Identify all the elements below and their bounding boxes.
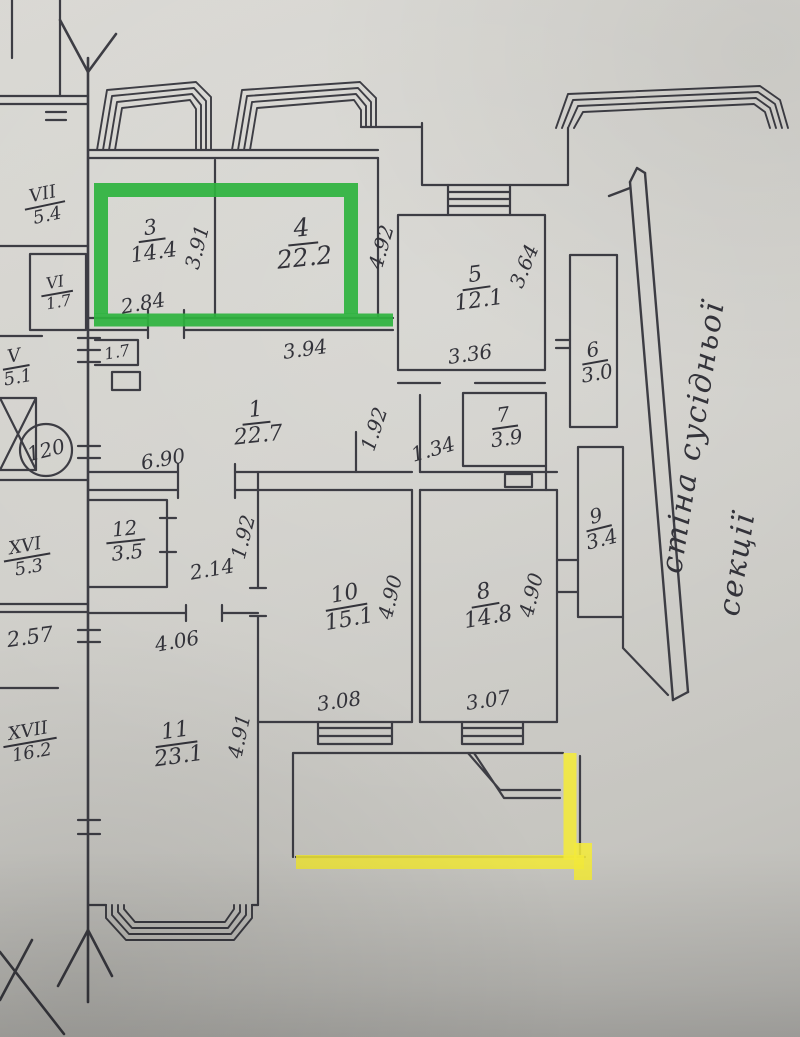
room-area: 3.0 <box>580 361 615 387</box>
unit-label-VI: VI1.7 <box>38 272 76 314</box>
yellow-highlight <box>296 753 584 880</box>
floor-plan: 314.4 422.2 512.1 63.0 73.9 122.7 123.5 … <box>0 0 800 1037</box>
room-label-10: 1015.1 <box>319 578 376 635</box>
left-section-walls <box>0 0 88 688</box>
unit-label-VII: VII5.4 <box>21 181 70 230</box>
room-label-8: 814.8 <box>458 576 515 633</box>
room-area: 3.5 <box>110 541 144 565</box>
room-label-7: 73.9 <box>486 402 524 451</box>
room-label-12: 123.5 <box>104 516 148 565</box>
unit-area: 5.1 <box>2 366 34 390</box>
room-label-4: 422.2 <box>272 212 333 274</box>
bay-windows <box>97 82 788 150</box>
room-label-3: 314.4 <box>126 213 179 267</box>
room-area: 3.9 <box>489 426 523 451</box>
section-wall-and-arrows <box>0 20 116 1034</box>
room-area: 22.2 <box>275 242 333 274</box>
room-label-11: 1123.1 <box>149 716 204 772</box>
room-label-5: 512.1 <box>449 260 504 316</box>
unit-area: 5.3 <box>13 556 45 580</box>
unit-label-XVI: XVI5.3 <box>0 533 53 582</box>
room-label-1: 122.7 <box>230 396 284 450</box>
unit-label-XVII: XVII16.2 <box>0 717 60 767</box>
room-area: 22.7 <box>233 422 284 450</box>
